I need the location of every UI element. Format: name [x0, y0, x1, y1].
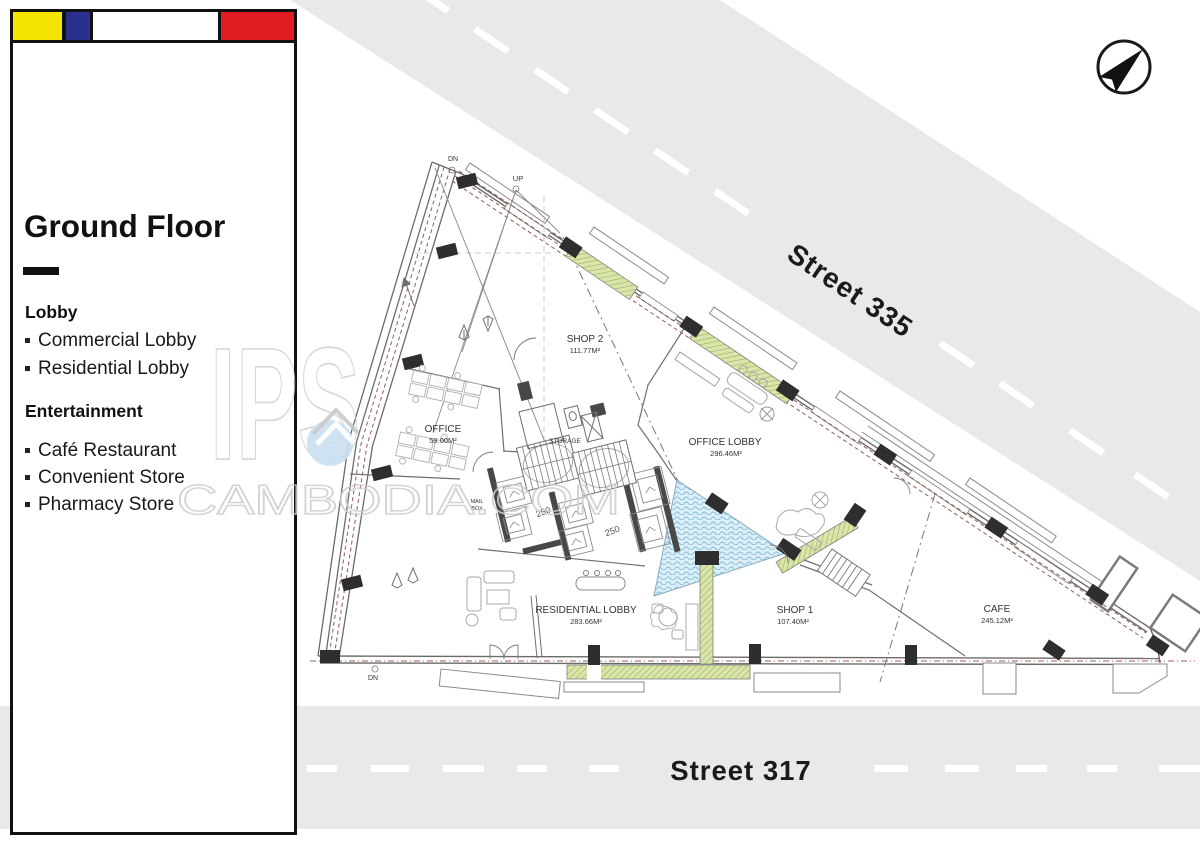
svg-text:296.46M²: 296.46M² — [710, 449, 742, 458]
svg-text:OFFICE LOBBY: OFFICE LOBBY — [689, 437, 762, 448]
svg-text:Street 317: Street 317 — [670, 755, 811, 786]
svg-text:BOX: BOX — [471, 506, 483, 512]
svg-text:107.40M²: 107.40M² — [777, 617, 809, 626]
svg-text:SHOP 2: SHOP 2 — [567, 334, 604, 345]
svg-text:59.00M²: 59.00M² — [429, 436, 457, 445]
svg-text:DN: DN — [368, 675, 378, 682]
svg-text:UP: UP — [513, 174, 523, 183]
svg-text:283.66M²: 283.66M² — [570, 617, 602, 626]
svg-text:SHOP 1: SHOP 1 — [777, 605, 814, 616]
svg-text:DN: DN — [448, 156, 458, 163]
svg-text:111.77M²: 111.77M² — [570, 346, 601, 355]
svg-text:245.12M²: 245.12M² — [981, 616, 1013, 625]
svg-text:RESIDENTIAL LOBBY: RESIDENTIAL LOBBY — [535, 605, 637, 616]
svg-text:250: 250 — [604, 524, 622, 539]
svg-text:CAFE: CAFE — [984, 604, 1011, 615]
svg-text:MAIL: MAIL — [471, 499, 484, 505]
svg-text:250: 250 — [535, 505, 553, 520]
svg-text:STORAGE: STORAGE — [549, 438, 581, 445]
svg-text:OFFICE: OFFICE — [425, 424, 462, 435]
